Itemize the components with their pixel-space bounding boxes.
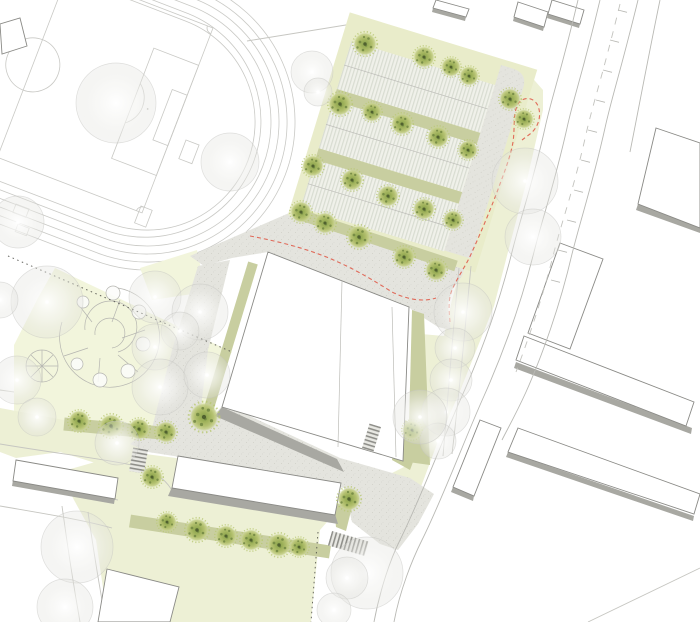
tree-highlight-dot <box>228 160 232 164</box>
tree-highlight-dot <box>115 441 119 445</box>
tree-highlight-dot <box>198 310 202 314</box>
tree-highlight-dot <box>436 439 440 443</box>
site-plan <box>0 0 700 622</box>
tree-highlight-dot <box>158 385 162 389</box>
tree-highlight-dot <box>453 346 457 350</box>
tree-highlight-dot <box>418 415 422 419</box>
tree-highlight-dot <box>531 235 535 239</box>
tree-highlight-dot <box>45 300 49 304</box>
tree-highlight-dot <box>153 295 157 299</box>
tree-highlight-dot <box>178 329 182 333</box>
tree-highlight-dot <box>114 101 118 105</box>
tree-highlight-dot <box>15 378 19 382</box>
tree-highlight-dot <box>35 415 39 419</box>
tree-highlight-dot <box>461 310 465 314</box>
tree-highlight-dot <box>75 545 79 549</box>
site-plan-canvas <box>0 0 700 622</box>
tree-highlight-dot <box>16 220 20 224</box>
tree-highlight-dot <box>523 179 527 183</box>
tree-highlight-dot <box>63 605 67 609</box>
tree-highlight-dot <box>153 345 157 349</box>
existing-tree-icon <box>37 579 93 622</box>
tree-highlight-dot <box>316 90 320 94</box>
tree-highlight-dot <box>310 70 314 74</box>
tree-highlight-dot <box>345 576 349 580</box>
tree-highlight-dot <box>449 378 453 382</box>
tree-highlight-dot <box>205 373 209 377</box>
tree-highlight-dot <box>332 608 336 612</box>
